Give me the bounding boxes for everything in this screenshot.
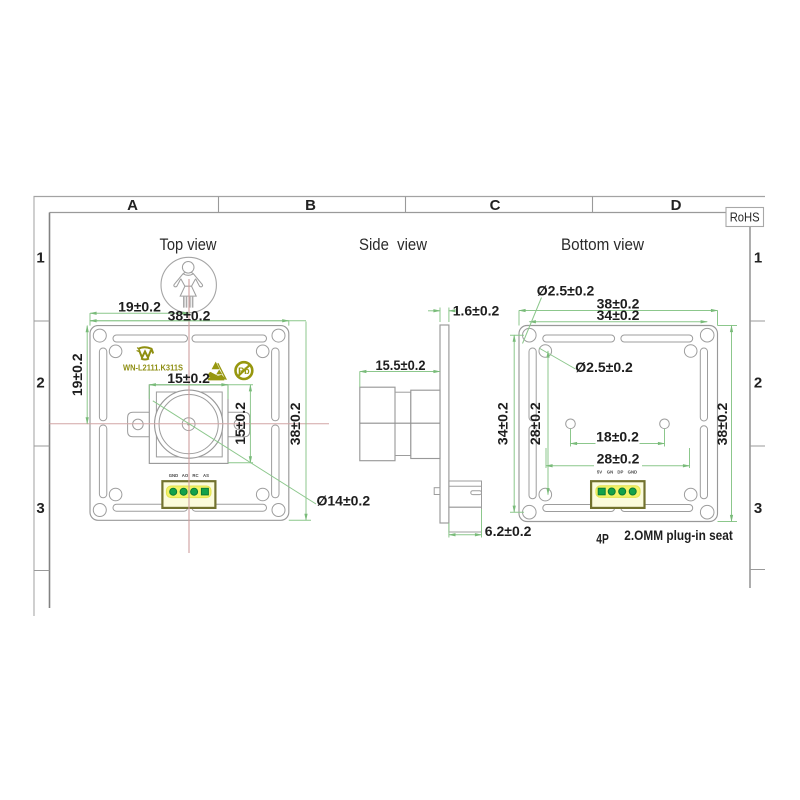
svg-text:Side view: Side view bbox=[359, 235, 428, 254]
svg-text:38±0.2: 38±0.2 bbox=[168, 307, 211, 323]
svg-text:AS: AS bbox=[203, 473, 209, 478]
svg-text:GND: GND bbox=[628, 470, 638, 475]
svg-text:Ø14±0.2: Ø14±0.2 bbox=[317, 493, 371, 509]
svg-text:15±0.2: 15±0.2 bbox=[167, 370, 210, 386]
svg-text:19±0.2: 19±0.2 bbox=[118, 298, 161, 314]
svg-text:2.OMM plug-in seat: 2.OMM plug-in seat bbox=[624, 528, 733, 543]
svg-text:Bottom view: Bottom view bbox=[561, 235, 645, 254]
svg-text:DP: DP bbox=[617, 470, 623, 475]
svg-text:15.5±0.2: 15.5±0.2 bbox=[376, 357, 426, 373]
svg-text:3: 3 bbox=[36, 500, 44, 517]
svg-text:D: D bbox=[671, 197, 682, 214]
svg-text:18±0.2: 18±0.2 bbox=[596, 428, 639, 444]
svg-text:A: A bbox=[127, 197, 138, 214]
svg-text:2: 2 bbox=[754, 375, 762, 392]
svg-text:B: B bbox=[305, 197, 316, 214]
svg-text:3: 3 bbox=[754, 500, 762, 517]
svg-text:15±0.2: 15±0.2 bbox=[232, 402, 248, 445]
svg-text:34±0.2: 34±0.2 bbox=[495, 402, 511, 445]
svg-text:RC: RC bbox=[192, 473, 198, 478]
svg-text:GN: GN bbox=[607, 470, 613, 475]
svg-text:1: 1 bbox=[754, 250, 762, 267]
svg-text:GND: GND bbox=[169, 473, 179, 478]
svg-text:RoHS: RoHS bbox=[730, 210, 760, 225]
svg-text:Ø2.5±0.2: Ø2.5±0.2 bbox=[537, 282, 595, 298]
svg-text:4P: 4P bbox=[596, 532, 609, 547]
svg-text:19±0.2: 19±0.2 bbox=[69, 353, 85, 396]
svg-text:2: 2 bbox=[36, 375, 44, 392]
svg-text:5V: 5V bbox=[597, 470, 602, 475]
svg-text:C: C bbox=[490, 197, 501, 214]
svg-text:28±0.2: 28±0.2 bbox=[597, 450, 640, 466]
svg-text:1.6±0.2: 1.6±0.2 bbox=[453, 302, 500, 318]
svg-text:38±0.2: 38±0.2 bbox=[287, 402, 303, 445]
svg-text:34±0.2: 34±0.2 bbox=[597, 307, 640, 323]
svg-text:AO: AO bbox=[182, 473, 189, 478]
svg-text:1: 1 bbox=[36, 250, 44, 267]
svg-text:6.2±0.2: 6.2±0.2 bbox=[485, 523, 532, 539]
svg-text:28±0.2: 28±0.2 bbox=[527, 402, 543, 445]
svg-text:38±0.2: 38±0.2 bbox=[714, 402, 730, 445]
svg-text:Ø2.5±0.2: Ø2.5±0.2 bbox=[575, 359, 633, 375]
svg-text:Top view: Top view bbox=[160, 235, 218, 254]
